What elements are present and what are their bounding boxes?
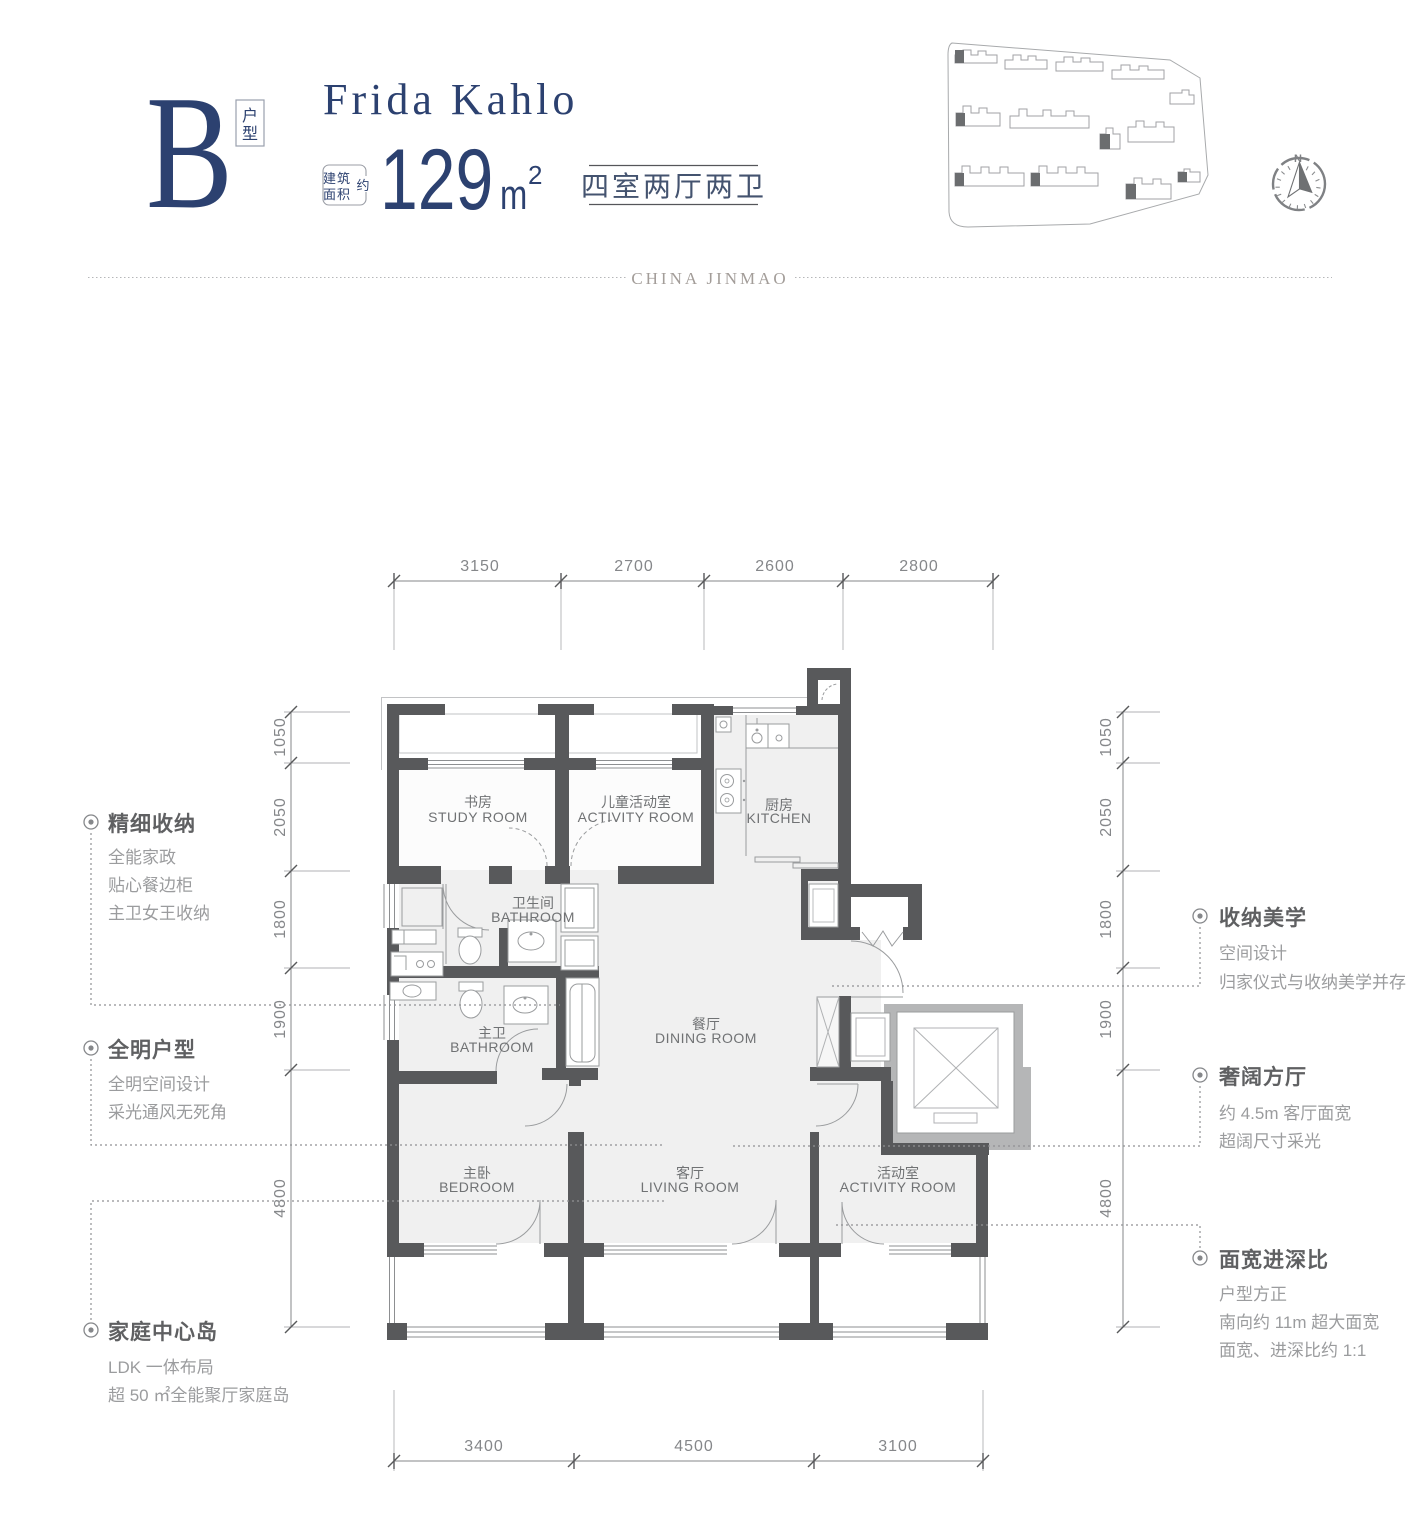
svg-text:B: B <box>146 61 233 242</box>
svg-text:书房: 书房 <box>464 794 492 810</box>
svg-text:空间设计: 空间设计 <box>1219 944 1287 963</box>
svg-text:1800: 1800 <box>1098 899 1115 939</box>
svg-text:DINING ROOM: DINING ROOM <box>655 1030 757 1046</box>
svg-text:贴心餐边柜: 贴心餐边柜 <box>108 876 193 895</box>
svg-text:精细收纳: 精细收纳 <box>108 812 196 836</box>
svg-text:ACTIVITY ROOM: ACTIVITY ROOM <box>840 1179 957 1195</box>
svg-text:BATHROOM: BATHROOM <box>491 909 575 925</box>
svg-text:3100: 3100 <box>878 1438 918 1455</box>
svg-text:2800: 2800 <box>899 558 939 575</box>
svg-text:N: N <box>1294 153 1302 165</box>
svg-text:1900: 1900 <box>1098 999 1115 1039</box>
svg-text:Frida Kahlo: Frida Kahlo <box>323 75 578 124</box>
svg-text:3150: 3150 <box>460 558 500 575</box>
svg-text:家庭中心岛: 家庭中心岛 <box>108 1320 218 1344</box>
svg-text:儿童活动室: 儿童活动室 <box>601 794 671 810</box>
svg-text:收纳美学: 收纳美学 <box>1219 906 1307 930</box>
svg-text:2050: 2050 <box>272 797 289 837</box>
svg-text:超阔尺寸采光: 超阔尺寸采光 <box>1219 1132 1321 1151</box>
svg-text:STUDY ROOM: STUDY ROOM <box>428 809 528 825</box>
svg-text:129: 129 <box>380 132 493 227</box>
svg-text:LDK 一体布局: LDK 一体布局 <box>108 1358 214 1377</box>
svg-text:KITCHEN: KITCHEN <box>747 810 812 826</box>
svg-text:4800: 4800 <box>272 1178 289 1218</box>
svg-text:四室两厅两卫: 四室两厅两卫 <box>581 171 767 202</box>
svg-text:CHINA JINMAO: CHINA JINMAO <box>631 269 788 288</box>
svg-text:面宽、进深比约 1:1: 面宽、进深比约 1:1 <box>1219 1341 1366 1360</box>
svg-text:户: 户 <box>242 107 258 125</box>
svg-text:约 4.5m 客厅面宽: 约 4.5m 客厅面宽 <box>1219 1104 1351 1123</box>
svg-text:1050: 1050 <box>1098 717 1115 757</box>
svg-text:m: m <box>500 171 527 218</box>
svg-text:ACTIVITY ROOM: ACTIVITY ROOM <box>578 809 695 825</box>
svg-text:约: 约 <box>356 178 369 193</box>
svg-text:LIVING ROOM: LIVING ROOM <box>641 1179 740 1195</box>
svg-text:主卫女王收纳: 主卫女王收纳 <box>108 904 210 923</box>
svg-text:2: 2 <box>528 160 542 190</box>
svg-text:3400: 3400 <box>464 1438 504 1455</box>
svg-text:归家仪式与收纳美学并存: 归家仪式与收纳美学并存 <box>1219 973 1406 992</box>
svg-text:2700: 2700 <box>614 558 654 575</box>
svg-text:建筑: 建筑 <box>323 171 351 186</box>
svg-text:4800: 4800 <box>1098 1178 1115 1218</box>
svg-text:超 50 ㎡全能聚厅家庭岛: 超 50 ㎡全能聚厅家庭岛 <box>108 1386 289 1405</box>
svg-text:户型方正: 户型方正 <box>1219 1285 1287 1304</box>
svg-text:型: 型 <box>242 125 258 143</box>
svg-text:1050: 1050 <box>272 717 289 757</box>
svg-text:1800: 1800 <box>272 899 289 939</box>
svg-text:采光通风无死角: 采光通风无死角 <box>108 1103 227 1122</box>
svg-text:4500: 4500 <box>674 1438 714 1455</box>
svg-text:南向约 11m 超大面宽: 南向约 11m 超大面宽 <box>1219 1313 1379 1332</box>
svg-text:面宽进深比: 面宽进深比 <box>1219 1248 1329 1272</box>
svg-text:2600: 2600 <box>755 558 795 575</box>
svg-text:全明户型: 全明户型 <box>107 1038 196 1062</box>
svg-text:BEDROOM: BEDROOM <box>439 1179 515 1195</box>
svg-text:面积: 面积 <box>323 187 351 202</box>
svg-text:全能家政: 全能家政 <box>108 848 176 867</box>
svg-text:奢阔方厅: 奢阔方厅 <box>1218 1065 1307 1089</box>
svg-text:BATHROOM: BATHROOM <box>450 1039 534 1055</box>
svg-text:全明空间设计: 全明空间设计 <box>108 1075 210 1094</box>
svg-text:2050: 2050 <box>1098 797 1115 837</box>
